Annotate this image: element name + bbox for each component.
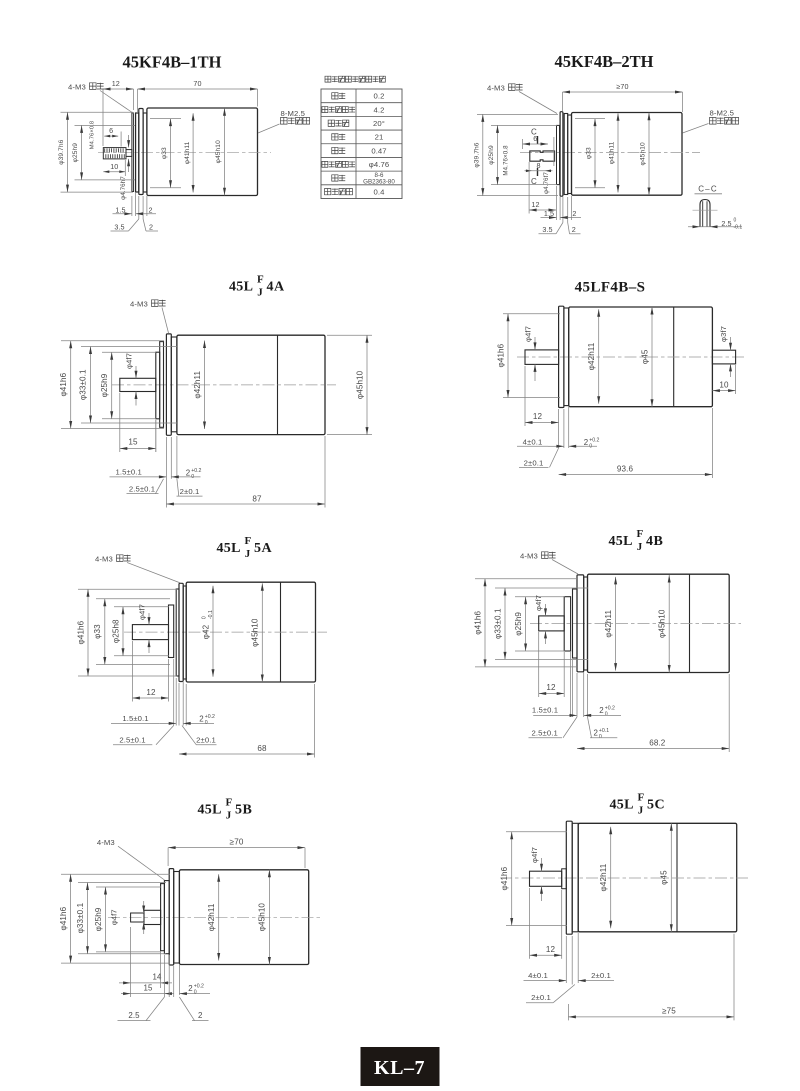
svg-text:2: 2 bbox=[593, 729, 598, 738]
svg-text:0: 0 bbox=[202, 616, 208, 619]
svg-text:2±0.1: 2±0.1 bbox=[180, 487, 200, 496]
svg-text:2.5±0.1: 2.5±0.1 bbox=[532, 728, 558, 737]
svg-text:10: 10 bbox=[110, 162, 118, 171]
svg-text:≥70: ≥70 bbox=[616, 82, 628, 91]
svg-text:6: 6 bbox=[533, 134, 537, 143]
svg-text:J: J bbox=[257, 287, 263, 299]
svg-text:5B: 5B bbox=[235, 803, 252, 818]
svg-text:φ25h9: φ25h9 bbox=[94, 907, 103, 931]
svg-text:87: 87 bbox=[252, 494, 262, 503]
svg-text:4-M3: 4-M3 bbox=[130, 300, 148, 309]
svg-text:φ25h8: φ25h8 bbox=[111, 619, 120, 643]
svg-text:2: 2 bbox=[148, 205, 152, 214]
svg-text:≥70: ≥70 bbox=[230, 837, 244, 846]
svg-text:φ4f7: φ4f7 bbox=[524, 326, 533, 342]
svg-text:φ33±0.1: φ33±0.1 bbox=[76, 902, 85, 933]
svg-text:φ41h11: φ41h11 bbox=[184, 141, 191, 164]
svg-text:12: 12 bbox=[546, 945, 556, 954]
svg-text:5C: 5C bbox=[647, 798, 665, 813]
svg-text:2.5: 2.5 bbox=[128, 1011, 140, 1020]
svg-text:F: F bbox=[245, 535, 252, 547]
svg-text:φ42h11: φ42h11 bbox=[599, 863, 608, 891]
svg-text:φ45: φ45 bbox=[640, 349, 649, 364]
svg-text:2: 2 bbox=[584, 438, 589, 447]
svg-text:45L: 45L bbox=[609, 534, 633, 549]
svg-text:45KF4B–1TH: 45KF4B–1TH bbox=[122, 53, 221, 72]
svg-text:4B: 4B bbox=[646, 534, 663, 549]
svg-text:45L: 45L bbox=[229, 280, 253, 295]
svg-text:0: 0 bbox=[205, 720, 208, 726]
svg-text:φ4f7: φ4f7 bbox=[125, 353, 134, 369]
svg-text:φ42h11: φ42h11 bbox=[604, 609, 613, 637]
svg-text:2: 2 bbox=[599, 706, 604, 715]
svg-text:φ25h9: φ25h9 bbox=[72, 143, 79, 163]
svg-text:4±0.1: 4±0.1 bbox=[523, 437, 543, 446]
svg-text:φ39.7h6: φ39.7h6 bbox=[58, 139, 65, 164]
svg-text:φ4.76h7: φ4.76h7 bbox=[120, 176, 127, 200]
svg-text:φ45h10: φ45h10 bbox=[355, 370, 364, 399]
svg-text:2: 2 bbox=[188, 984, 193, 993]
svg-text:J: J bbox=[638, 805, 644, 817]
svg-text:12: 12 bbox=[531, 200, 539, 209]
svg-text:φ33±0.1: φ33±0.1 bbox=[79, 369, 88, 400]
svg-text:4±0.1: 4±0.1 bbox=[528, 971, 548, 980]
svg-text:0: 0 bbox=[734, 218, 737, 224]
svg-text:2±0.1: 2±0.1 bbox=[196, 735, 216, 744]
svg-text:45L: 45L bbox=[610, 798, 634, 813]
svg-text:≥75: ≥75 bbox=[662, 1007, 676, 1016]
svg-text:2: 2 bbox=[198, 1011, 203, 1020]
svg-text:φ45h10: φ45h10 bbox=[215, 140, 222, 163]
svg-text:φ42h11: φ42h11 bbox=[193, 370, 202, 398]
svg-text:15: 15 bbox=[144, 984, 153, 993]
svg-text:φ33: φ33 bbox=[93, 624, 102, 639]
svg-text:φ41h6: φ41h6 bbox=[500, 866, 509, 890]
svg-text:J: J bbox=[226, 810, 232, 822]
svg-text:-0.1: -0.1 bbox=[734, 224, 743, 230]
svg-text:4-M3: 4-M3 bbox=[520, 552, 538, 561]
svg-text:φ4.76: φ4.76 bbox=[369, 160, 389, 169]
svg-text:φ39.7h6: φ39.7h6 bbox=[473, 142, 480, 167]
svg-text:φ4f7: φ4f7 bbox=[110, 909, 119, 925]
svg-text:4-M3: 4-M3 bbox=[95, 555, 113, 564]
svg-text:φ45h10: φ45h10 bbox=[258, 903, 267, 932]
svg-text:8-M2.5: 8-M2.5 bbox=[281, 109, 306, 118]
svg-text:70: 70 bbox=[193, 79, 201, 88]
svg-text:1.5±0.1: 1.5±0.1 bbox=[122, 714, 148, 723]
svg-text:-0.1: -0.1 bbox=[208, 610, 214, 619]
svg-text:12: 12 bbox=[112, 79, 120, 88]
svg-text:2±0.1: 2±0.1 bbox=[531, 993, 551, 1002]
svg-text:φ41h6: φ41h6 bbox=[59, 906, 68, 930]
svg-text:12: 12 bbox=[546, 683, 556, 692]
svg-text:2.5±0.1: 2.5±0.1 bbox=[129, 485, 155, 494]
svg-text:F: F bbox=[637, 528, 644, 540]
svg-text:4-M3: 4-M3 bbox=[487, 84, 505, 93]
svg-text:1.5: 1.5 bbox=[115, 205, 125, 214]
svg-text:φ4f7: φ4f7 bbox=[534, 595, 543, 611]
svg-text:φ33: φ33 bbox=[586, 147, 593, 159]
svg-text:2: 2 bbox=[572, 209, 576, 218]
svg-text:0.47: 0.47 bbox=[371, 146, 386, 155]
svg-text:3.5: 3.5 bbox=[114, 222, 124, 231]
svg-text:M4.76×0.8: M4.76×0.8 bbox=[90, 121, 96, 149]
svg-text:J: J bbox=[245, 548, 251, 560]
svg-text:φ4f7: φ4f7 bbox=[138, 604, 147, 620]
svg-text:2±0.1: 2±0.1 bbox=[591, 971, 611, 980]
svg-text:6: 6 bbox=[109, 126, 113, 135]
svg-text:1.5±0.1: 1.5±0.1 bbox=[532, 705, 558, 714]
svg-text:φ45h10: φ45h10 bbox=[640, 142, 647, 165]
svg-text:21: 21 bbox=[375, 133, 384, 142]
svg-text:0: 0 bbox=[605, 712, 608, 718]
svg-text:φ3f7: φ3f7 bbox=[719, 326, 728, 342]
svg-text:2: 2 bbox=[199, 714, 204, 723]
svg-text:93.6: 93.6 bbox=[617, 464, 634, 473]
svg-text:F: F bbox=[638, 792, 645, 804]
svg-text:φ42h11: φ42h11 bbox=[207, 903, 216, 931]
svg-text:φ42: φ42 bbox=[201, 624, 210, 639]
svg-text:φ45: φ45 bbox=[660, 870, 669, 885]
svg-text:φ45h10: φ45h10 bbox=[251, 618, 260, 647]
svg-text:0.2: 0.2 bbox=[374, 92, 385, 101]
svg-text:12: 12 bbox=[146, 688, 156, 697]
svg-text:20°: 20° bbox=[373, 119, 385, 128]
svg-text:F: F bbox=[257, 274, 264, 286]
svg-text:8-M2.5: 8-M2.5 bbox=[710, 109, 735, 118]
svg-text:4.2: 4.2 bbox=[374, 105, 385, 114]
svg-text:φ41h6: φ41h6 bbox=[473, 611, 482, 635]
svg-text:φ41h11: φ41h11 bbox=[609, 141, 616, 164]
svg-text:2.5±0.1: 2.5±0.1 bbox=[119, 735, 145, 744]
svg-text:0.4: 0.4 bbox=[374, 187, 386, 196]
svg-text:2±0.1: 2±0.1 bbox=[524, 458, 544, 467]
svg-text:φ25h9: φ25h9 bbox=[100, 373, 109, 397]
svg-text:φ41h6: φ41h6 bbox=[76, 620, 85, 644]
svg-text:φ42h11: φ42h11 bbox=[587, 342, 596, 370]
svg-text:φ41h6: φ41h6 bbox=[496, 343, 505, 367]
svg-text:2: 2 bbox=[149, 222, 153, 231]
svg-text:45L: 45L bbox=[198, 803, 222, 818]
svg-text:4-M3: 4-M3 bbox=[97, 838, 115, 847]
svg-text:0: 0 bbox=[194, 990, 197, 996]
svg-text:10: 10 bbox=[719, 380, 729, 389]
svg-text:φ25h9: φ25h9 bbox=[514, 612, 523, 636]
svg-text:2: 2 bbox=[186, 468, 191, 477]
svg-text:45KF4B–2TH: 45KF4B–2TH bbox=[554, 52, 653, 71]
svg-text:15: 15 bbox=[128, 437, 138, 446]
svg-text:45LF4B–S: 45LF4B–S bbox=[575, 280, 646, 296]
svg-text:0: 0 bbox=[599, 734, 602, 740]
svg-text:φ45h10: φ45h10 bbox=[658, 609, 667, 638]
svg-text:F: F bbox=[226, 797, 233, 809]
svg-text:φ41h6: φ41h6 bbox=[59, 372, 68, 396]
svg-text:φ4.76f7: φ4.76f7 bbox=[543, 172, 550, 194]
svg-text:J: J bbox=[637, 541, 643, 553]
svg-text:1.5±0.1: 1.5±0.1 bbox=[116, 467, 142, 476]
svg-text:2.5: 2.5 bbox=[721, 219, 731, 228]
svg-text:12: 12 bbox=[533, 412, 543, 421]
svg-text:68.2: 68.2 bbox=[649, 738, 666, 747]
svg-text:8: 8 bbox=[536, 161, 540, 170]
svg-text:5A: 5A bbox=[254, 541, 273, 556]
svg-text:M4.76×0.8: M4.76×0.8 bbox=[503, 145, 510, 176]
svg-text:3.5: 3.5 bbox=[542, 225, 552, 234]
svg-text:φ25h9: φ25h9 bbox=[488, 145, 495, 165]
svg-text:45L: 45L bbox=[217, 541, 241, 556]
svg-text:GB2363-80: GB2363-80 bbox=[363, 179, 395, 186]
svg-text:2: 2 bbox=[572, 225, 576, 234]
svg-text:φ4f7: φ4f7 bbox=[530, 847, 539, 863]
svg-text:4-M3: 4-M3 bbox=[68, 83, 86, 92]
svg-text:KL–7: KL–7 bbox=[374, 1057, 425, 1079]
svg-text:φ33: φ33 bbox=[161, 147, 168, 159]
svg-text:C–C: C–C bbox=[698, 185, 718, 194]
svg-text:68: 68 bbox=[257, 744, 267, 753]
svg-text:φ33±0.1: φ33±0.1 bbox=[493, 608, 502, 639]
svg-text:4A: 4A bbox=[267, 280, 286, 295]
